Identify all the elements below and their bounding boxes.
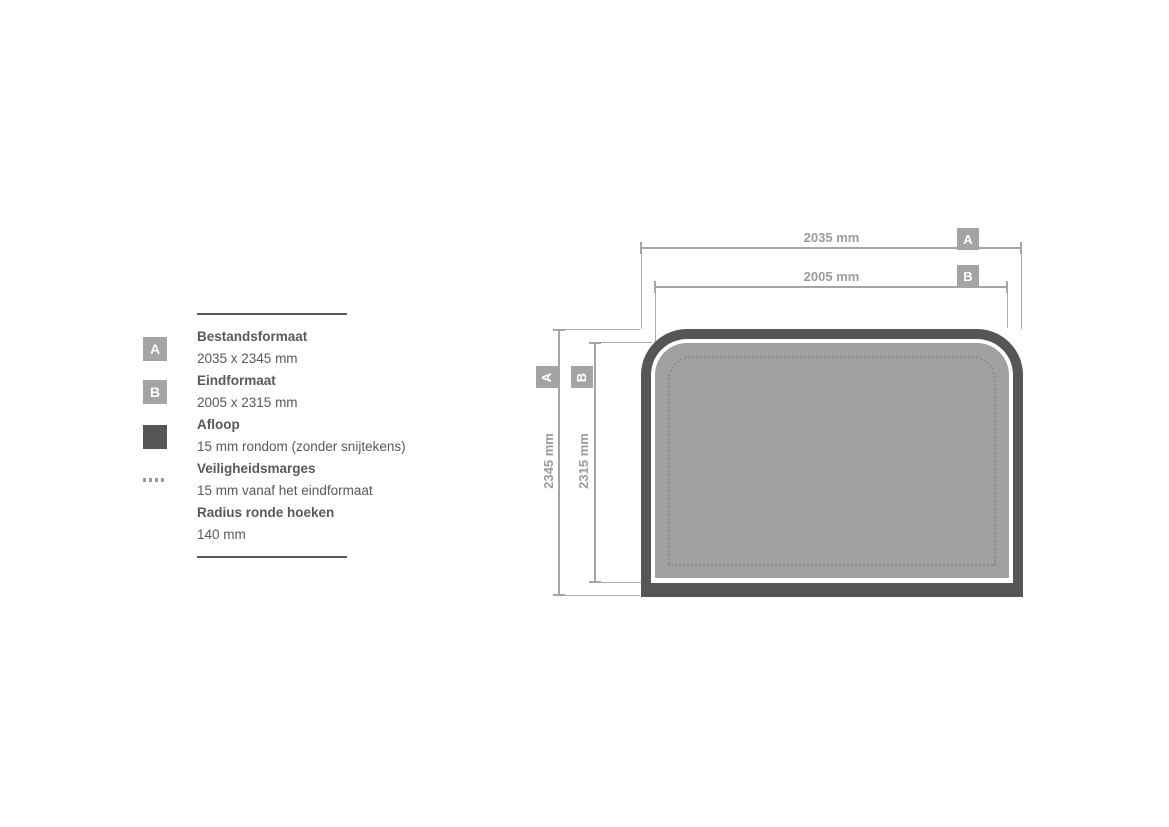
- extension-line: [600, 342, 652, 343]
- marker-a-letter: A: [963, 232, 972, 247]
- diagram-marker-a-left: A: [536, 366, 558, 388]
- dimension-label-width-b: 2005 mm: [655, 269, 1008, 284]
- legend-value-bestandsformaat: 2035 x 2345 mm: [197, 348, 457, 370]
- marker-a-letter: A: [539, 372, 554, 381]
- bleed-area-shape: [641, 329, 1023, 597]
- safety-margin-dotted-line: [668, 356, 996, 566]
- dimension-label-height-b: 2315 mm: [575, 416, 593, 506]
- legend-bottom-rule: [197, 556, 347, 558]
- dimension-tick: [589, 581, 601, 583]
- marker-b-letter: B: [574, 372, 589, 381]
- dimension-line-height-b: [594, 343, 596, 583]
- dimension-tick: [553, 594, 565, 596]
- legend-marker-a: A: [143, 337, 167, 361]
- marker-b-letter: B: [963, 269, 972, 284]
- extension-line: [1021, 253, 1022, 329]
- legend-title-veiligheidsmarges: Veiligheidsmarges: [197, 458, 457, 480]
- legend-title-radius: Radius ronde hoeken: [197, 502, 457, 524]
- legend-value-radius: 140 mm: [197, 524, 457, 546]
- dimension-line-height-a: [558, 330, 560, 596]
- legend-safety-dotted-icon: [143, 478, 164, 482]
- legend-title-bestandsformaat: Bestandsformaat: [197, 326, 457, 348]
- legend-title-afloop: Afloop: [197, 414, 457, 436]
- dimension-line-width-b: [655, 286, 1008, 288]
- legend-marker-a-label: A: [150, 341, 160, 357]
- extension-line: [563, 595, 640, 596]
- extension-line: [563, 329, 640, 330]
- legend-bleed-swatch: [143, 425, 167, 449]
- legend-entries: Bestandsformaat 2035 x 2345 mm Eindforma…: [197, 326, 457, 546]
- extension-line: [1007, 292, 1008, 328]
- diagram-marker-a-top: A: [957, 228, 979, 250]
- dimension-tick: [553, 329, 565, 331]
- legend-title-eindformaat: Eindformaat: [197, 370, 457, 392]
- legend-top-rule: [197, 313, 347, 315]
- extension-line: [641, 253, 642, 329]
- print-spec-sheet: A B Bestandsformaat 2035 x 2345 mm Eindf…: [0, 0, 1169, 827]
- trim-edge-ring: [651, 339, 1013, 583]
- diagram-marker-b-left: B: [571, 366, 593, 388]
- dimension-tick: [589, 342, 601, 344]
- diagram-marker-b-top: B: [957, 265, 979, 287]
- legend-value-veiligheidsmarges: 15 mm vanaf het eindformaat: [197, 480, 457, 502]
- legend-value-eindformaat: 2005 x 2315 mm: [197, 392, 457, 414]
- legend-marker-b-label: B: [150, 384, 160, 400]
- final-format-area: [655, 343, 1009, 578]
- extension-line: [655, 292, 656, 342]
- dimension-label-height-a: 2345 mm: [540, 416, 558, 506]
- legend-marker-b: B: [143, 380, 167, 404]
- legend-value-afloop: 15 mm rondom (zonder snijtekens): [197, 436, 457, 458]
